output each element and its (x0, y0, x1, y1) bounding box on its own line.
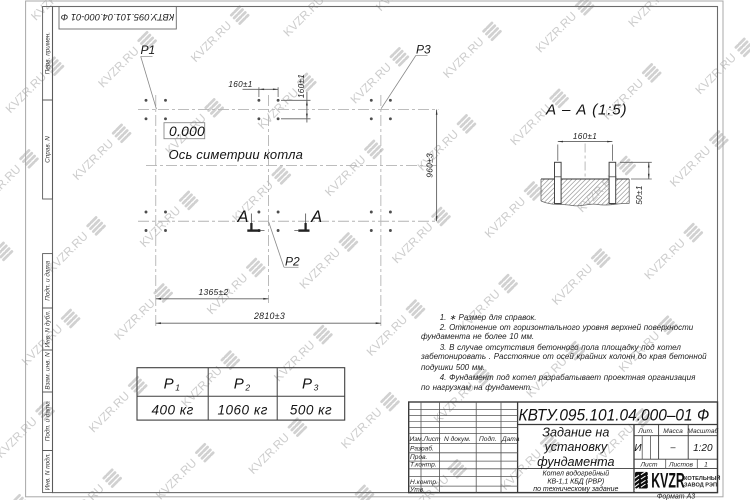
svg-text:Справ. N: Справ. N (45, 136, 52, 163)
svg-text:Формат А3: Формат А3 (657, 494, 695, 500)
svg-text:Ось симетрии котла: Ось симетрии котла (169, 147, 303, 162)
svg-text:Утв.: Утв. (409, 487, 425, 494)
svg-text:1365±2: 1365±2 (198, 287, 228, 297)
svg-text:KVZR.RU: KVZR.RU (95, 44, 142, 91)
svg-text:фундамента: фундамента (537, 455, 614, 469)
svg-text:160±1: 160±1 (573, 132, 597, 141)
svg-text:500 кг: 500 кг (290, 403, 332, 418)
svg-text:KVZR.RU: KVZR.RU (482, 194, 529, 241)
svg-text:по нагрузкам на фундамент.: по нагрузкам на фундамент. (421, 383, 532, 392)
svg-text:Задание на: Задание на (542, 426, 609, 440)
svg-text:0.000: 0.000 (169, 124, 205, 139)
svg-text:Лит.: Лит. (637, 428, 654, 435)
svg-text:160±1: 160±1 (297, 74, 306, 98)
svg-text:KVZR.RU: KVZR.RU (692, 50, 739, 97)
svg-text:KVZR.RU: KVZR.RU (389, 220, 436, 267)
svg-text:KVZR.RU: KVZR.RU (111, 296, 158, 343)
svg-text:KVZR.RU: KVZR.RU (153, 456, 200, 500)
svg-text:1:20: 1:20 (693, 443, 713, 454)
svg-text:Р: Р (234, 376, 244, 393)
svg-text:3. В случае отсутствия бетонн: 3. В случае отсутствия бетонного пола пл… (440, 343, 682, 352)
svg-text:1. ∗ Размер для справок.: 1. ∗ Размер для справок. (440, 313, 537, 322)
svg-text:А: А (236, 208, 248, 226)
svg-text:KVZR.RU: KVZR.RU (625, 0, 672, 30)
svg-text:KVZR.RU: KVZR.RU (440, 34, 487, 81)
svg-text:Р2: Р2 (285, 254, 300, 268)
svg-text:3: 3 (314, 383, 319, 393)
svg-text:фундамента не более 10 мм.: фундамента не более 10 мм. (421, 332, 534, 341)
svg-text:Н.контр.: Н.контр. (410, 479, 438, 486)
svg-text:Разраб.: Разраб. (410, 445, 434, 453)
svg-text:Инв. N дубл.: Инв. N дубл. (44, 311, 52, 348)
svg-text:KVZR.RU: KVZR.RU (280, 0, 327, 39)
svg-text:N докум.: N докум. (444, 435, 471, 443)
svg-text:КВТУ.095.101.04.000–01 Ф: КВТУ.095.101.04.000–01 Ф (519, 406, 710, 425)
svg-text:400 кг: 400 кг (151, 403, 193, 418)
svg-text:KVZR.RU: KVZR.RU (188, 18, 235, 65)
svg-text:KVZR.RU: KVZR.RU (533, 9, 580, 56)
svg-text:KVZR.RU: KVZR.RU (0, 414, 40, 461)
svg-text:160±1: 160±1 (228, 80, 252, 89)
svg-text:Р1: Р1 (141, 43, 156, 57)
svg-text:KVZR.RU: KVZR.RU (86, 389, 133, 436)
svg-text:KVZR.RU: KVZR.RU (549, 261, 596, 308)
svg-text:50±1: 50±1 (635, 185, 644, 204)
svg-text:KVZR.RU: KVZR.RU (0, 162, 24, 209)
svg-text:установку: установку (543, 440, 607, 454)
svg-text:KVZR.RU: KVZR.RU (667, 143, 714, 190)
svg-text:Перв. примен.: Перв. примен. (45, 32, 52, 74)
svg-text:KVZR.RU: KVZR.RU (415, 127, 462, 174)
svg-text:КВ-1,1 КБД (РВР): КВ-1,1 КБД (РВР) (547, 479, 604, 486)
svg-text:KVZR.RU: KVZR.RU (137, 203, 184, 250)
svg-text:Р: Р (164, 376, 174, 393)
svg-text:Подп.: Подп. (479, 435, 497, 443)
svg-text:KVZR.RU: KVZR.RU (70, 136, 117, 183)
svg-text:А – А (1:5): А – А (1:5) (545, 102, 627, 119)
svg-text:1060 кг: 1060 кг (218, 403, 268, 418)
svg-text:КОТЕЛЬНЫЙ: КОТЕЛЬНЫЙ (684, 474, 720, 482)
svg-text:KVZR: KVZR (651, 468, 685, 493)
svg-text:Взам. инв. N: Взам. инв. N (45, 352, 52, 390)
svg-text:Подп. и дата: Подп. и дата (44, 260, 52, 300)
svg-text:Масса: Масса (663, 428, 683, 435)
svg-text:Изм.Лист: Изм.Лист (410, 436, 442, 443)
svg-text:2810±3: 2810±3 (253, 311, 285, 321)
svg-text:Подп. и дата: Подп. и дата (44, 401, 52, 441)
svg-text:4. Фундамент под котел разраб: 4. Фундамент под котел разрабатывает про… (440, 373, 696, 382)
svg-text:по техническому задание: по техническому задание (533, 485, 618, 493)
svg-text:KVZR.RU: KVZR.RU (364, 312, 411, 359)
svg-text:960±3: 960±3 (425, 153, 435, 178)
svg-text:1: 1 (704, 461, 708, 468)
svg-text:Масштаб: Масштаб (687, 427, 718, 435)
svg-text:КВТУ.095.101.04.000-01 Ф: КВТУ.095.101.04.000-01 Ф (60, 12, 174, 23)
svg-text:KVZR.RU: KVZR.RU (245, 430, 292, 477)
svg-text:KVZR.RU: KVZR.RU (641, 236, 688, 283)
svg-text:подушки 500 мм.: подушки 500 мм. (421, 363, 485, 372)
svg-text:Дата: Дата (501, 436, 520, 443)
svg-text:Т.контр.: Т.контр. (410, 462, 437, 469)
svg-text:–: – (669, 442, 676, 452)
svg-text:Пров.: Пров. (410, 454, 428, 461)
svg-text:Инв. N подл.: Инв. N подл. (44, 453, 52, 490)
svg-text:А: А (310, 208, 322, 226)
svg-text:забетонировать . Расстояние о: забетонировать . Расстояние от осей край… (420, 352, 707, 361)
svg-text:2. Отклонение от горизонтальн: 2. Отклонение от горизонтального уровня … (439, 323, 694, 332)
svg-text:Р3: Р3 (416, 43, 431, 57)
svg-text:KVZR.RU: KVZR.RU (322, 152, 369, 199)
svg-text:Р: Р (302, 376, 312, 393)
svg-text:1: 1 (175, 383, 180, 393)
svg-text:KVZR.RU: KVZR.RU (296, 245, 343, 292)
svg-text:Котел водогрейный: Котел водогрейный (543, 470, 610, 478)
svg-text:ЗАВОД РЭП: ЗАВОД РЭП (684, 483, 717, 489)
svg-text:2: 2 (244, 383, 250, 393)
svg-text:И: И (634, 443, 642, 454)
